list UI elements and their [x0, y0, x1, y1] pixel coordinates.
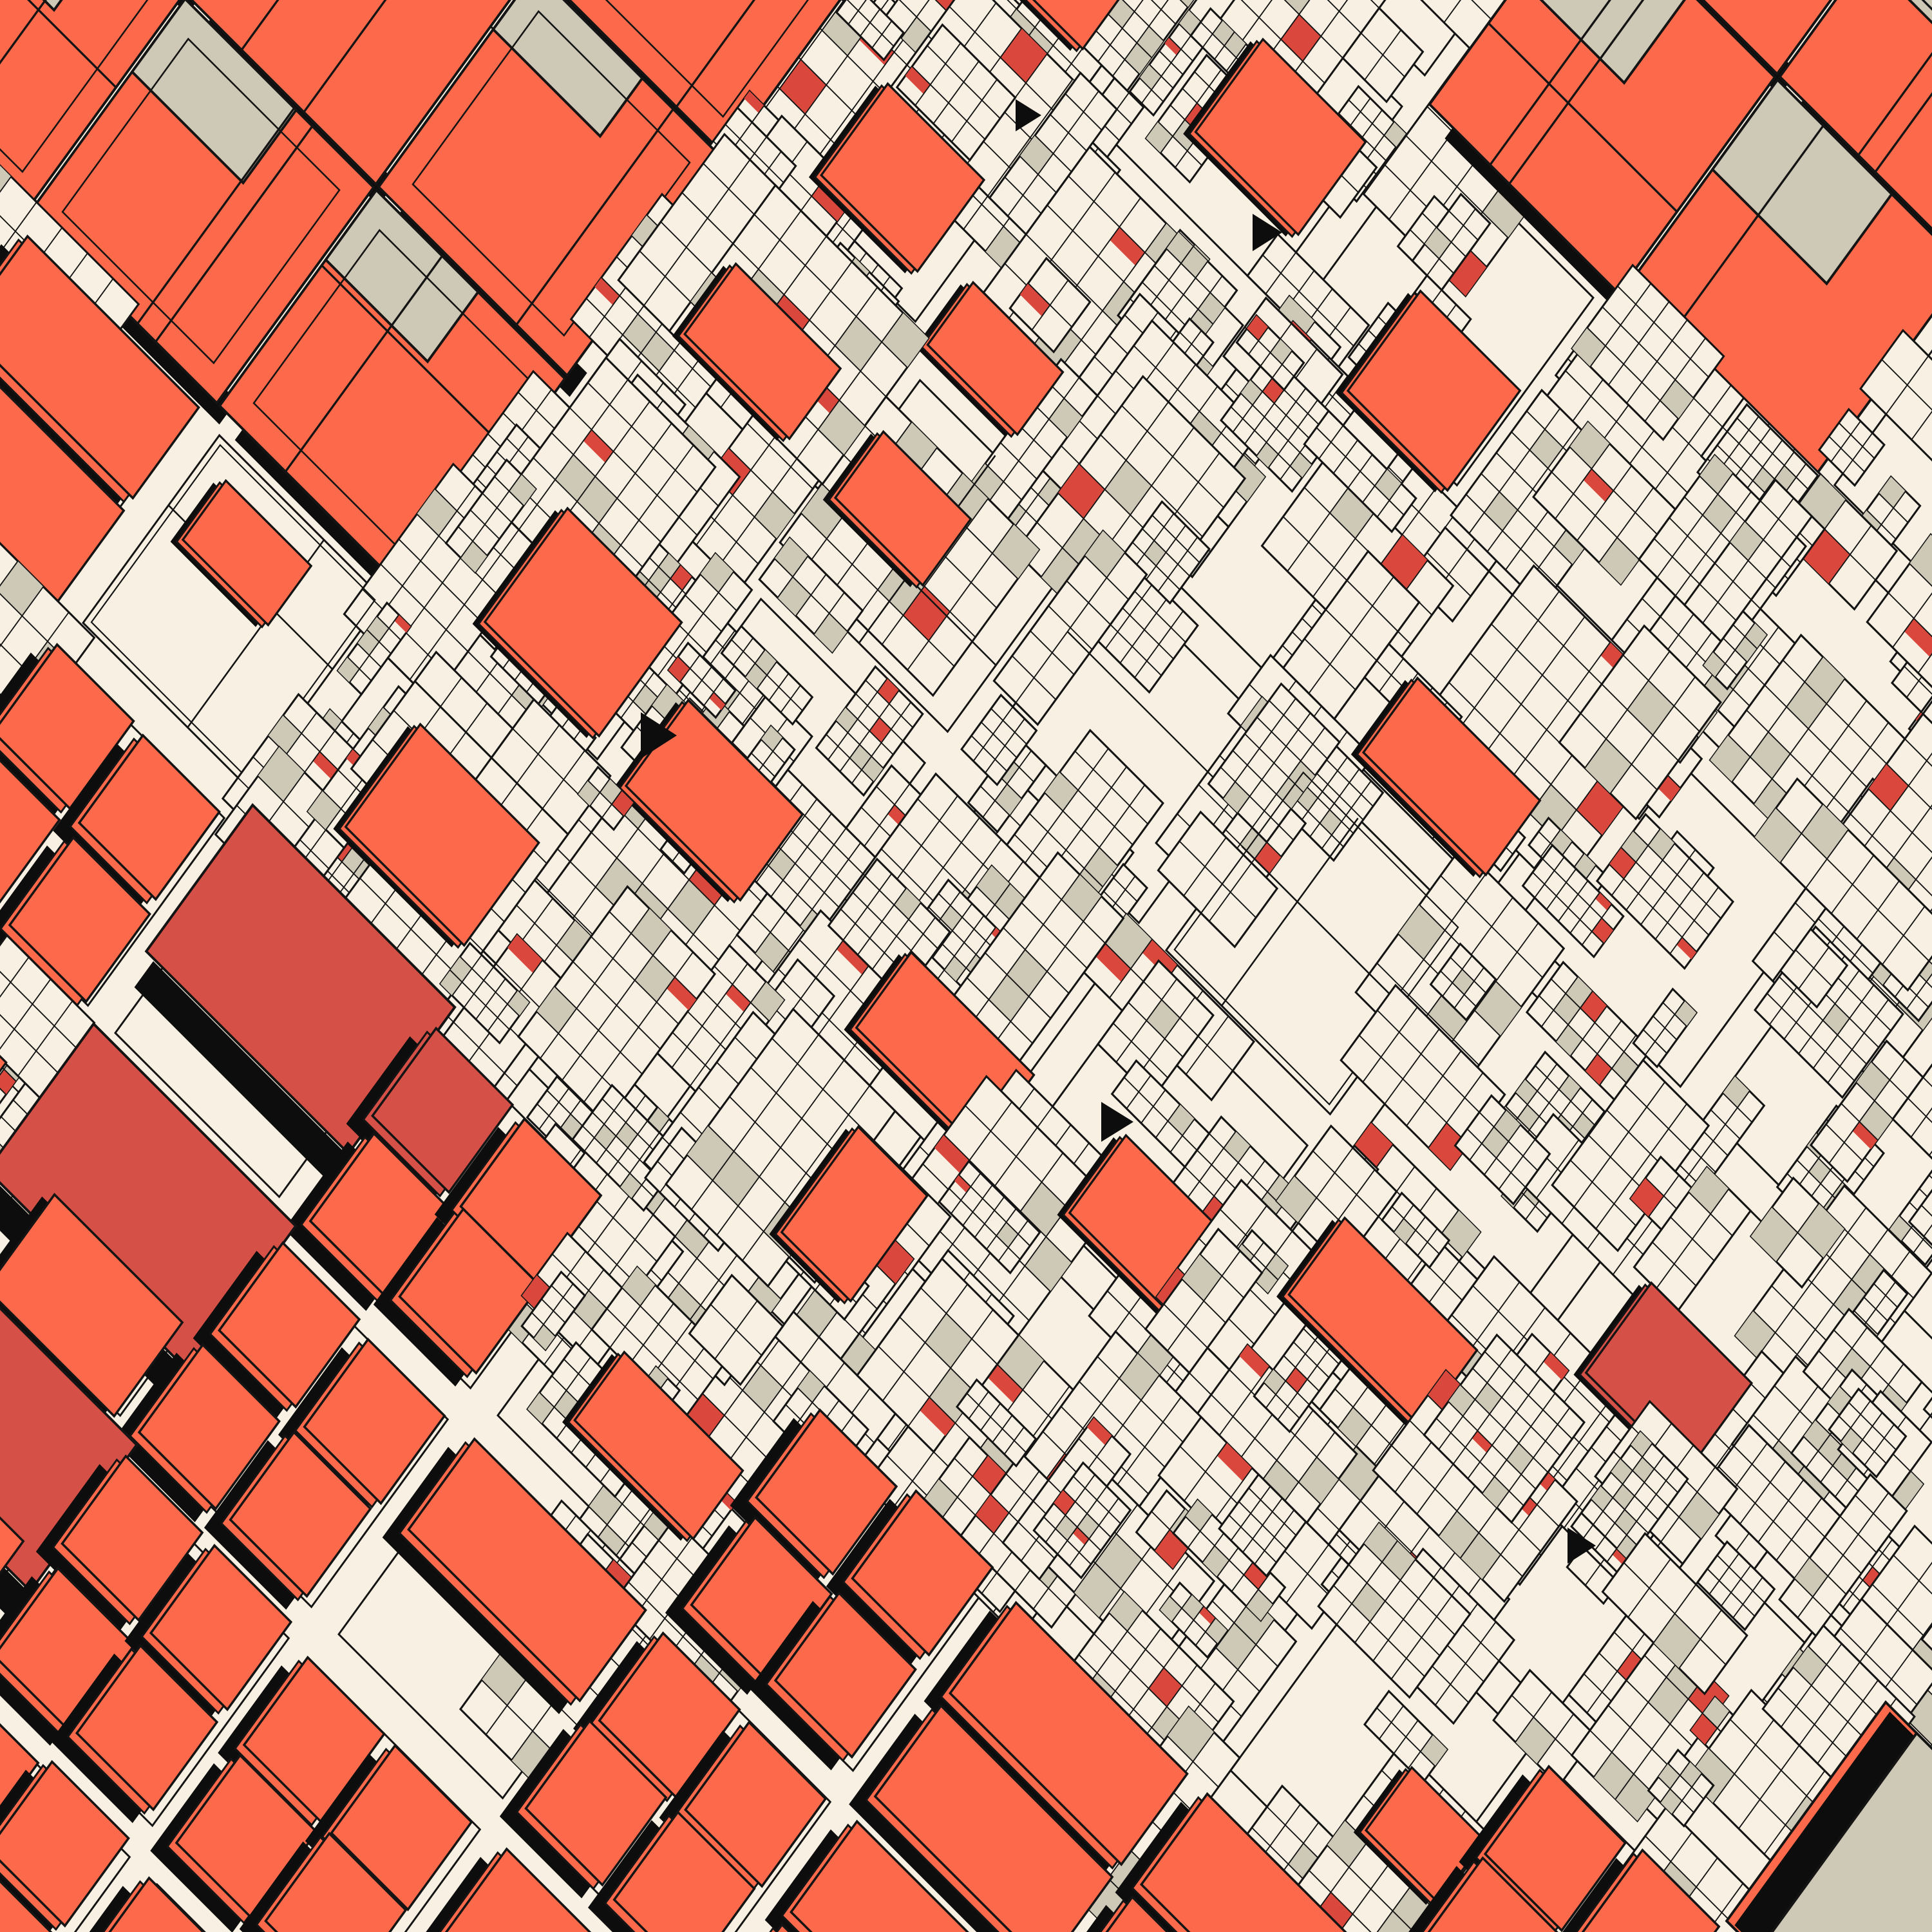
generative-art-canvas [0, 0, 1932, 1932]
city-grid-svg [0, 0, 1932, 1932]
